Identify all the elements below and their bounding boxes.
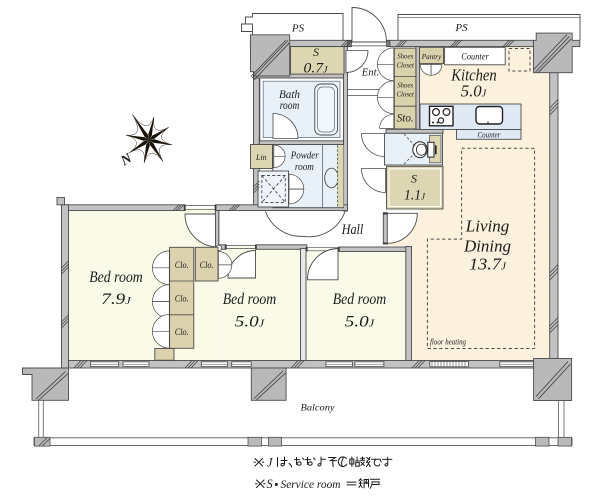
svg-text:Powder: Powder [290,151,320,162]
svg-text:room: room [280,100,300,112]
svg-text:J: J [267,455,273,469]
svg-text:S: S [267,477,273,491]
svg-text:PS: PS [291,23,305,35]
svg-text:PS: PS [454,22,468,34]
svg-text:Closet: Closet [396,61,414,70]
svg-text:Living: Living [465,217,510,236]
svg-text:room: room [295,162,314,173]
svg-text:Counter: Counter [478,131,502,140]
svg-text:Shoes: Shoes [397,52,413,61]
svg-text:Hall: Hall [341,222,363,238]
svg-text:Sto.: Sto. [397,113,414,125]
svg-text:Counter: Counter [461,52,489,62]
svg-text:S: S [411,172,417,186]
svg-text:Clo.: Clo. [200,261,214,271]
svg-text:Shoes: Shoes [397,81,413,90]
svg-text:Ent.: Ent. [361,67,379,79]
svg-text:Lin: Lin [255,153,267,162]
svg-text:Bed room: Bed room [333,291,387,308]
svg-text:Clo.: Clo. [175,294,189,304]
svg-text:Clo.: Clo. [175,328,189,338]
svg-text:S: S [313,45,319,59]
svg-text:Bed room: Bed room [223,291,277,308]
svg-text:Bed room: Bed room [89,269,143,286]
svg-text:floor heating: floor heating [430,337,467,347]
svg-text:Dining: Dining [463,237,511,256]
svg-text:Service room: Service room [281,479,341,491]
svg-text:Clo.: Clo. [175,261,189,271]
svg-text:Pantry: Pantry [421,52,442,61]
svg-text:Balcony: Balcony [301,403,335,413]
svg-text:Closet: Closet [396,90,414,99]
